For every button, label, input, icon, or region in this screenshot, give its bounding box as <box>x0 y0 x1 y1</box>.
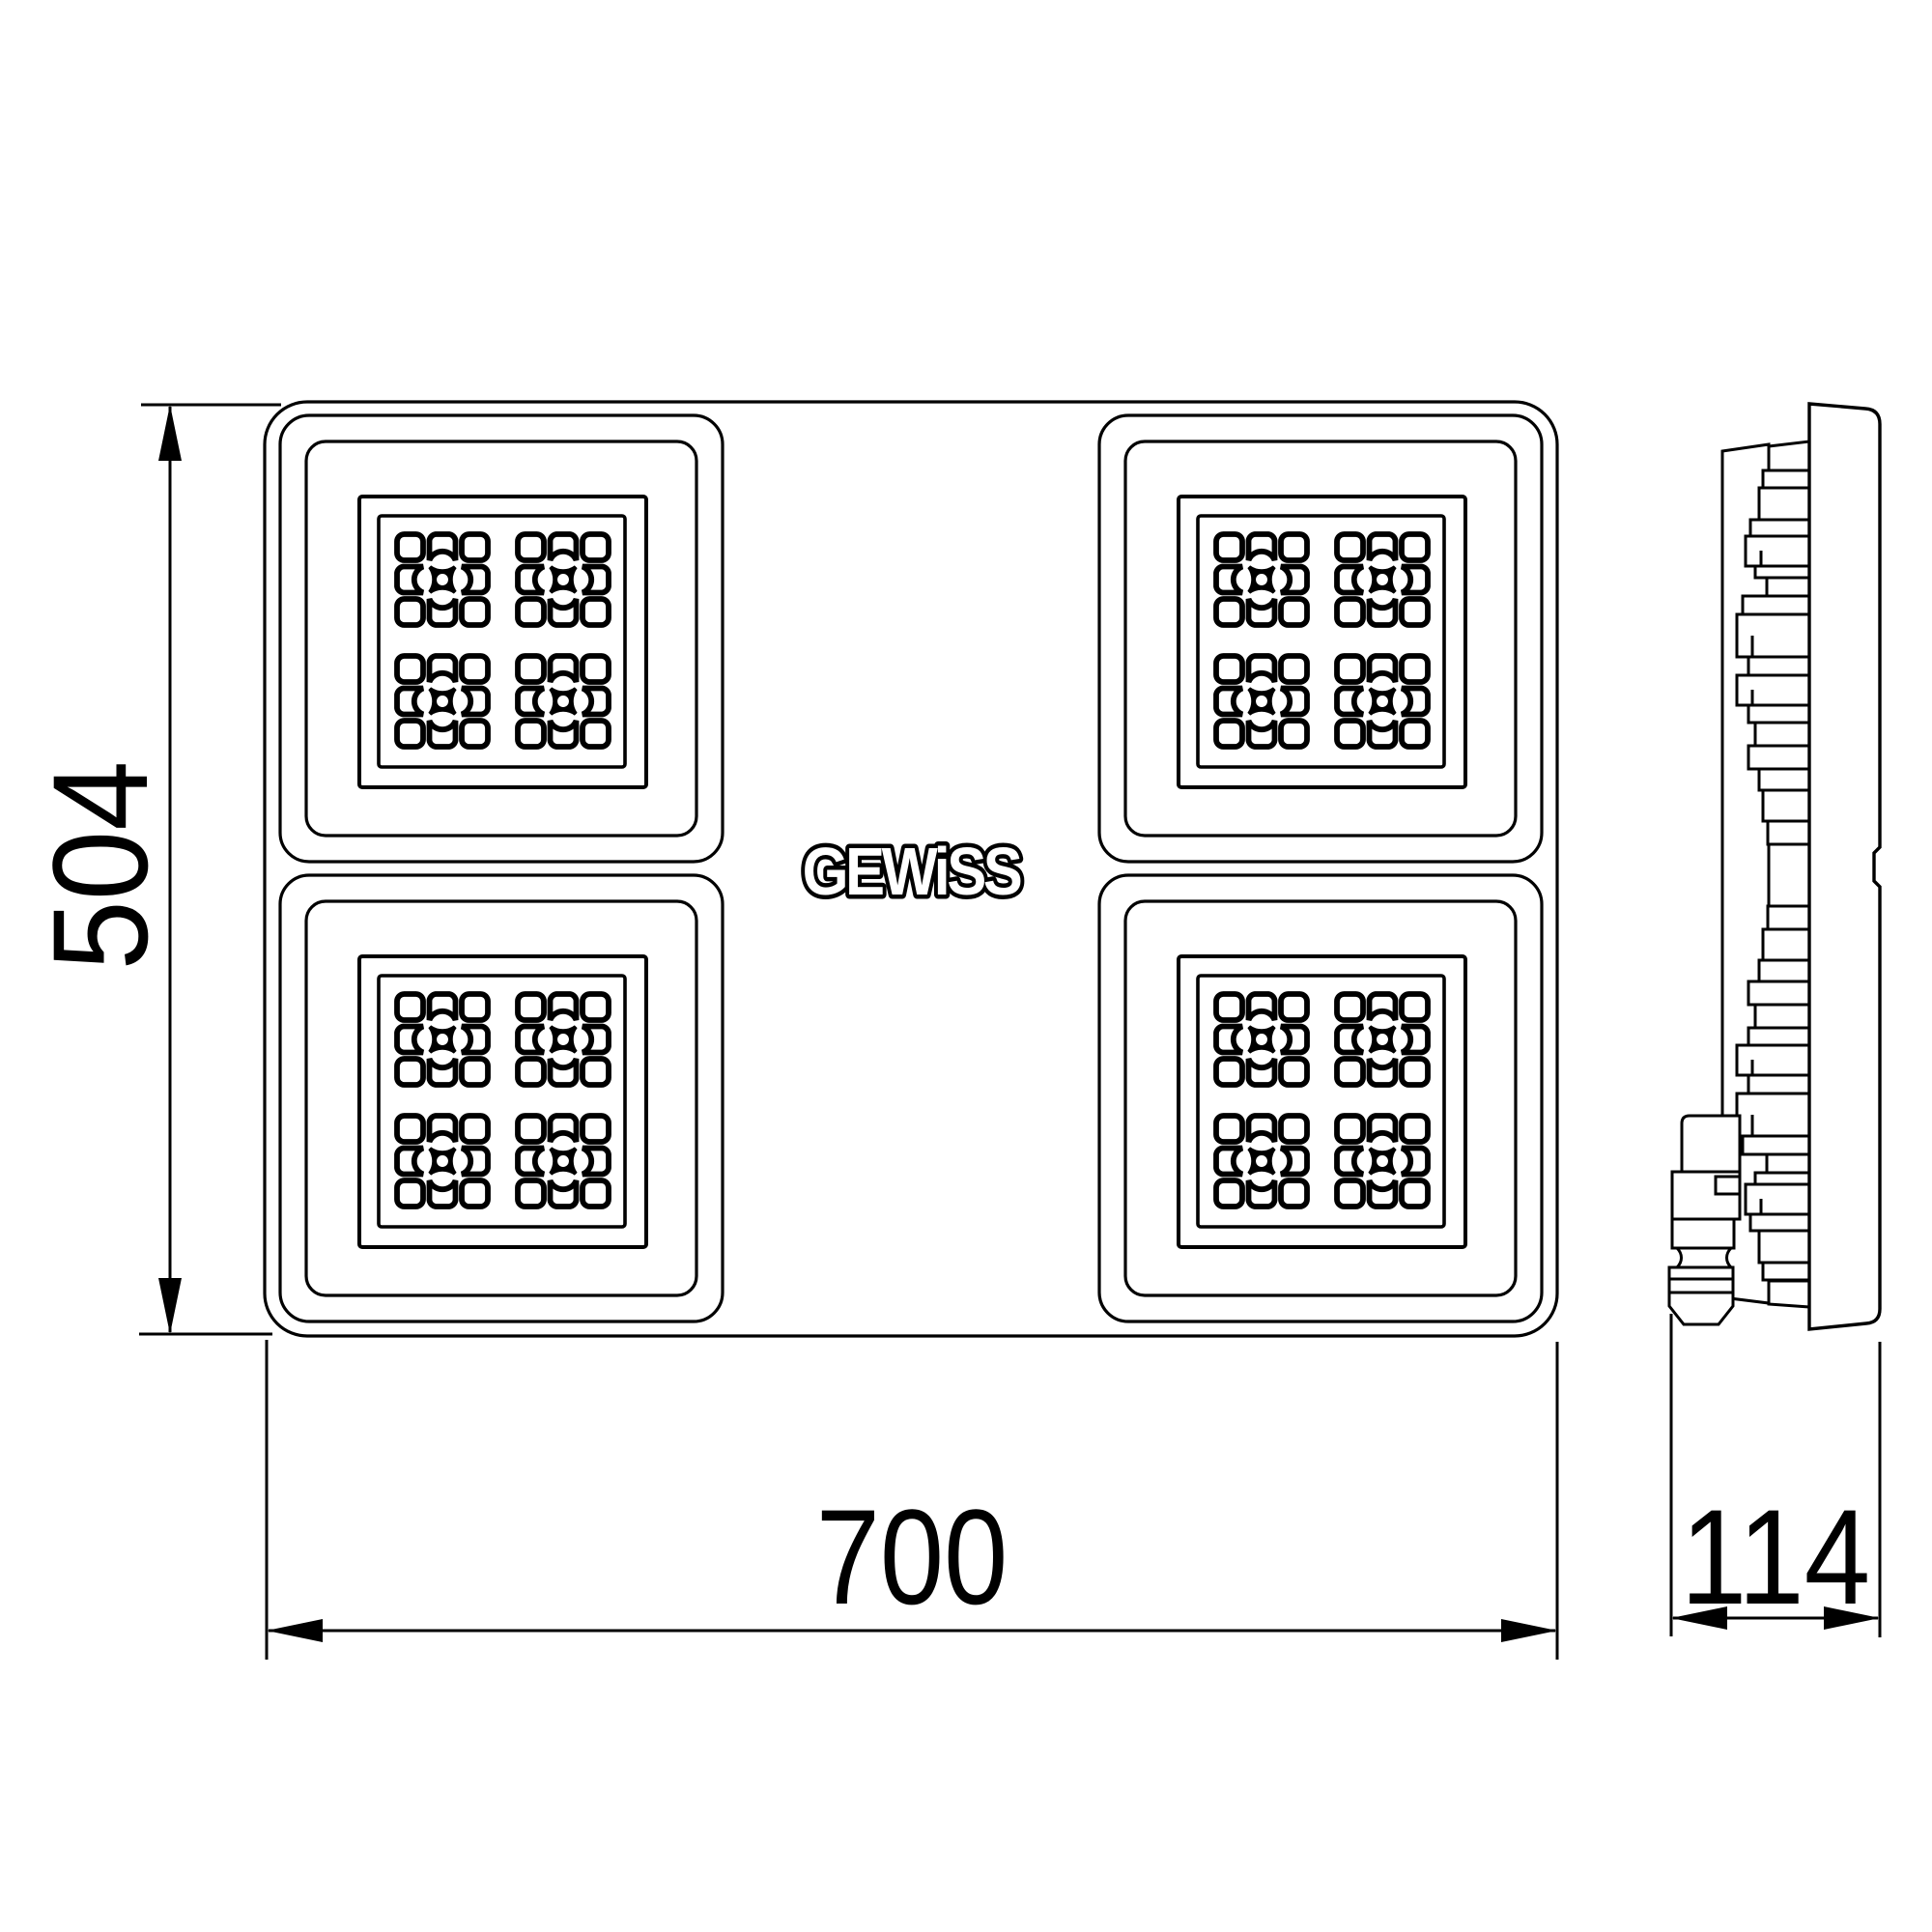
svg-text:700: 700 <box>816 1481 1009 1633</box>
svg-text:114: 114 <box>1681 1482 1870 1633</box>
svg-text:GEWiSS: GEWiSS <box>803 833 1021 909</box>
svg-text:504: 504 <box>25 760 176 970</box>
